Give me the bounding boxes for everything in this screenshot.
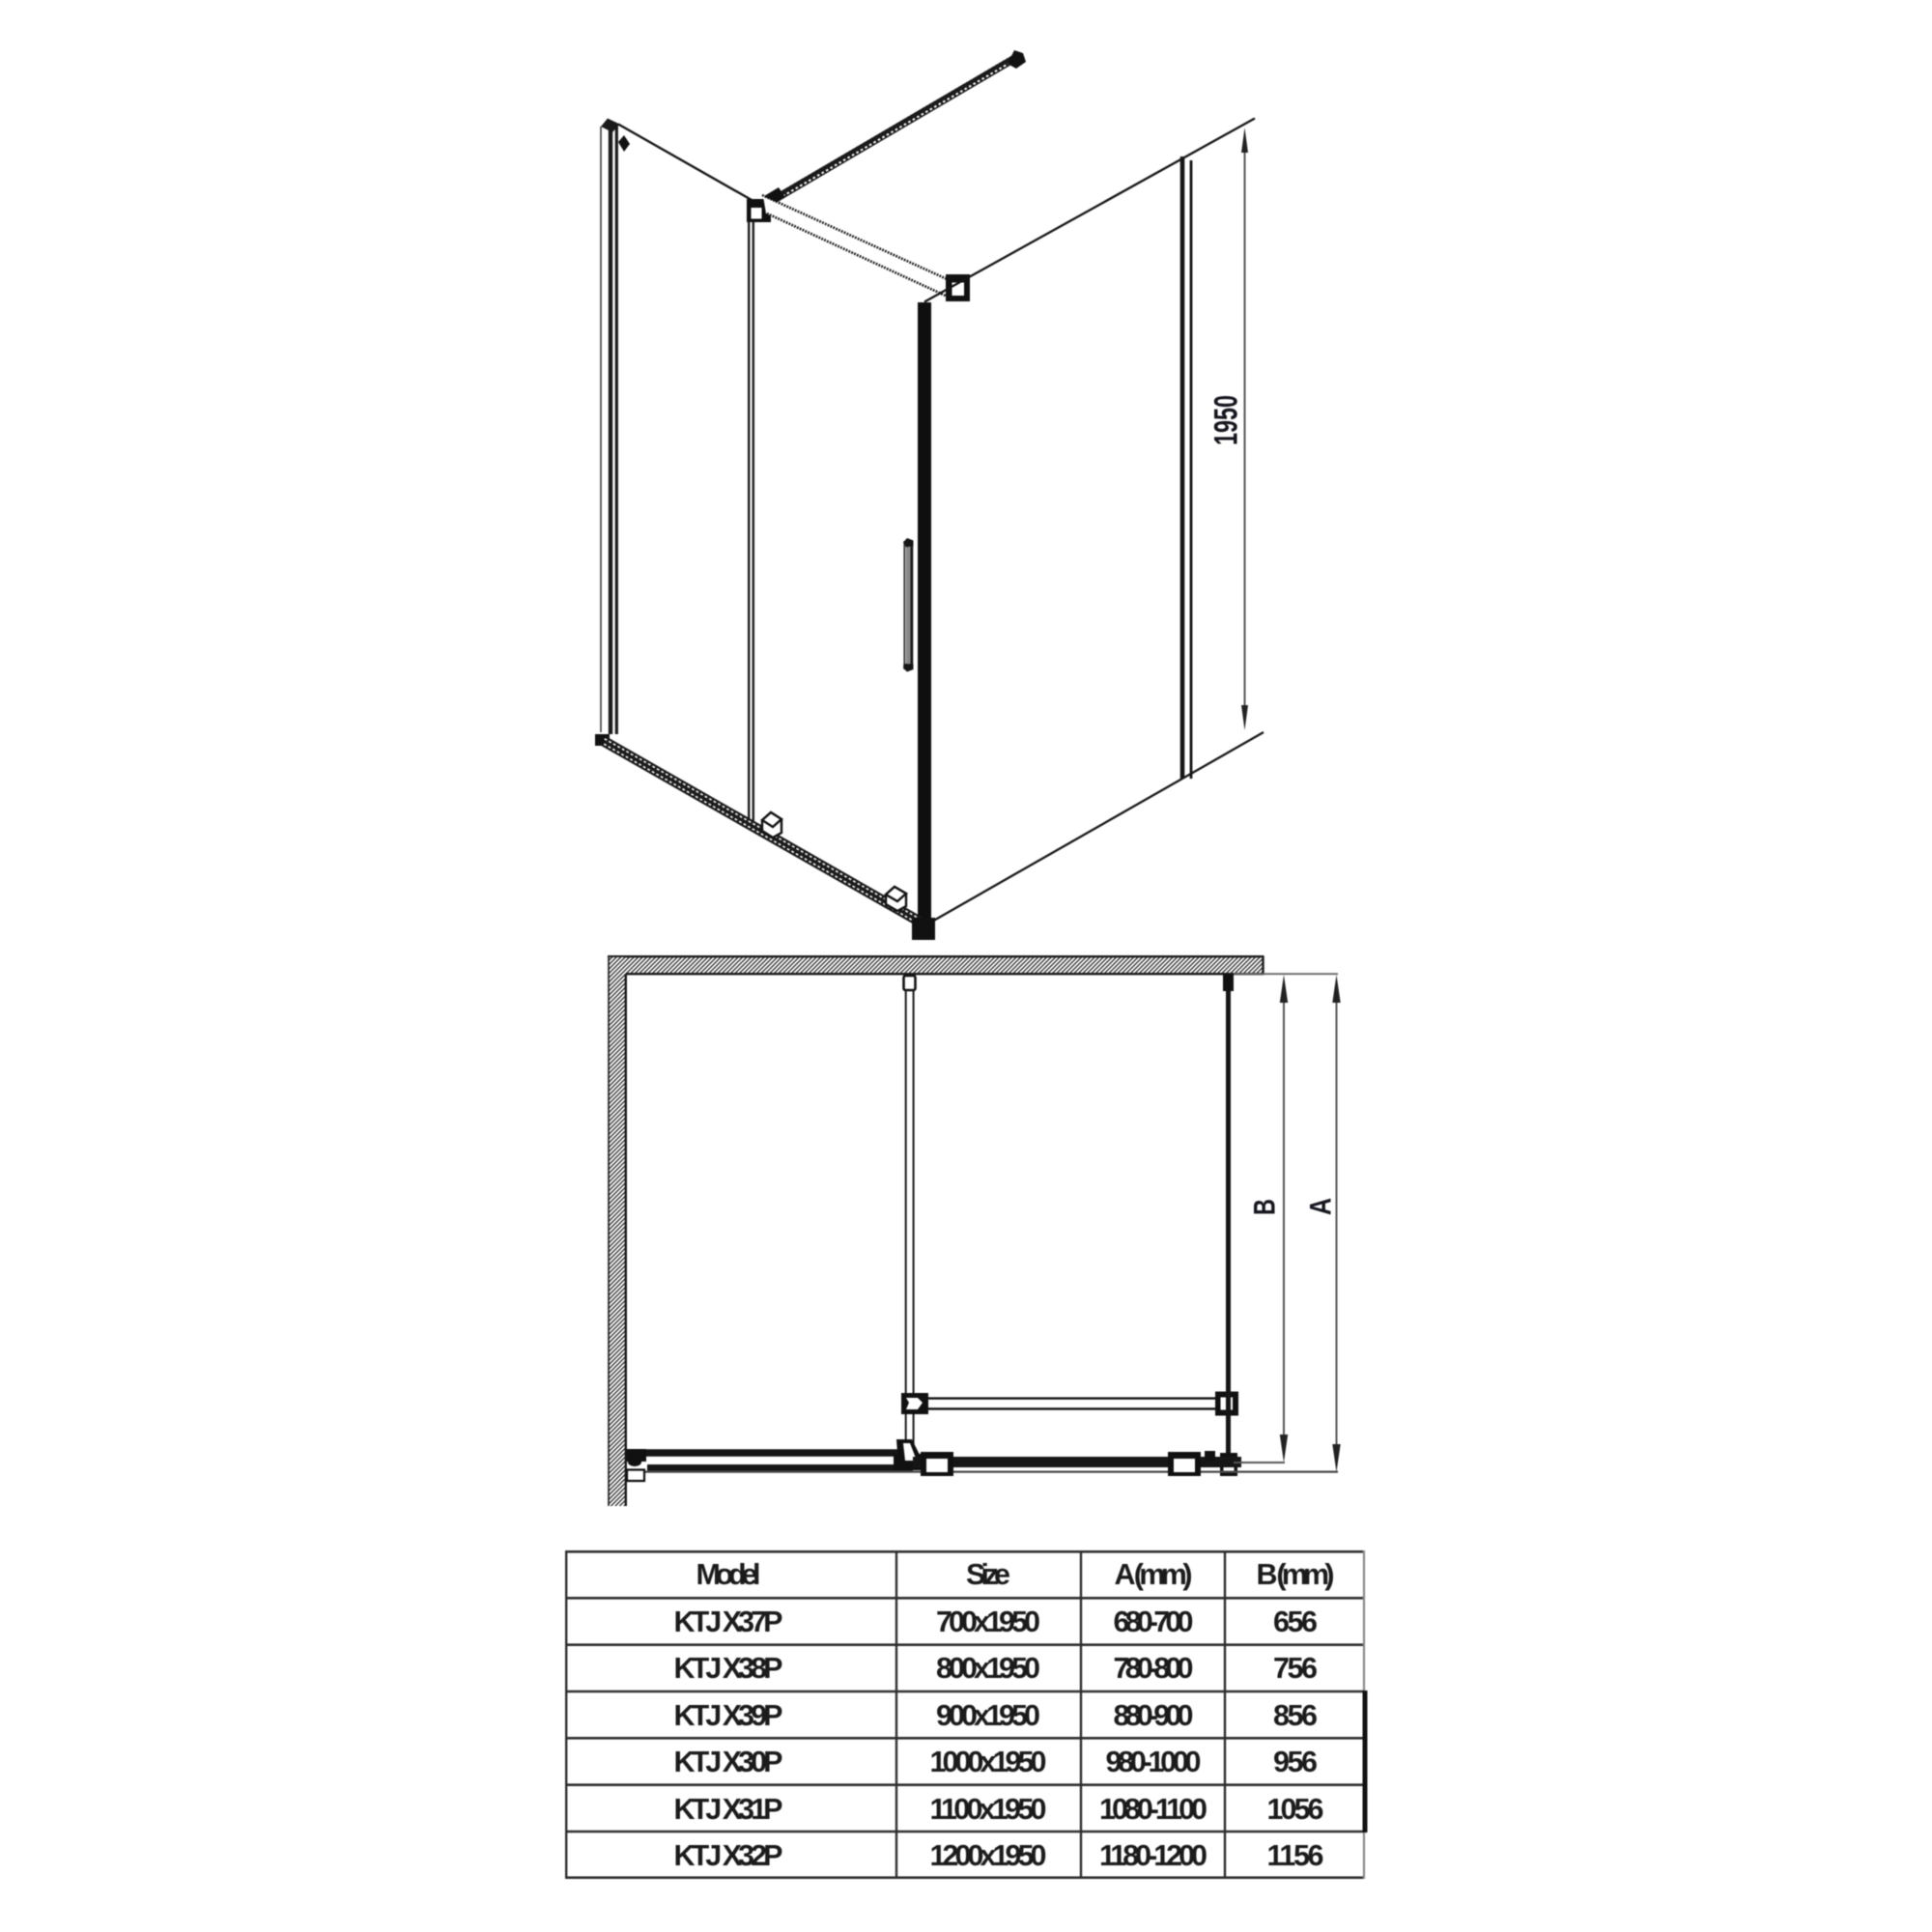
svg-text:756: 756 [1273, 1652, 1318, 1685]
svg-text:B (mm): B (mm) [1257, 1558, 1335, 1591]
svg-text:KTJ X37P: KTJ X37P [674, 1605, 783, 1638]
svg-text:1056: 1056 [1267, 1793, 1324, 1826]
svg-text:856: 856 [1273, 1699, 1318, 1732]
svg-text:KTJ X32P: KTJ X32P [674, 1839, 783, 1872]
svg-text:KTJ X30P: KTJ X30P [674, 1746, 783, 1778]
svg-text:1080-1100: 1080-1100 [1099, 1793, 1207, 1826]
svg-text:KTJ X31P: KTJ X31P [674, 1793, 783, 1826]
svg-text:900x1950: 900x1950 [936, 1699, 1040, 1732]
svg-text:Size: Size [966, 1558, 1010, 1591]
svg-text:B: B [1247, 1199, 1282, 1215]
svg-text:1180-1200: 1180-1200 [1099, 1839, 1207, 1872]
svg-text:680-700: 680-700 [1114, 1605, 1194, 1638]
svg-text:A (mm): A (mm) [1115, 1558, 1193, 1591]
svg-text:1950: 1950 [1208, 395, 1245, 445]
svg-text:956: 956 [1273, 1746, 1318, 1778]
svg-text:1156: 1156 [1267, 1839, 1324, 1872]
svg-text:880-900: 880-900 [1114, 1699, 1194, 1732]
svg-text:Model: Model [696, 1558, 761, 1591]
svg-text:A: A [1303, 1198, 1338, 1215]
svg-text:780-800: 780-800 [1114, 1652, 1194, 1685]
svg-text:800x1950: 800x1950 [936, 1652, 1040, 1685]
svg-text:KTJ X38P: KTJ X38P [674, 1652, 783, 1685]
svg-text:1200x1950: 1200x1950 [930, 1839, 1047, 1872]
svg-text:1000x1950: 1000x1950 [930, 1746, 1047, 1778]
svg-text:700x1950: 700x1950 [936, 1605, 1040, 1638]
svg-text:980-1000: 980-1000 [1106, 1746, 1202, 1778]
svg-text:KTJ X39P: KTJ X39P [674, 1699, 783, 1732]
svg-text:656: 656 [1273, 1605, 1318, 1638]
svg-text:1100x1950: 1100x1950 [930, 1793, 1047, 1826]
